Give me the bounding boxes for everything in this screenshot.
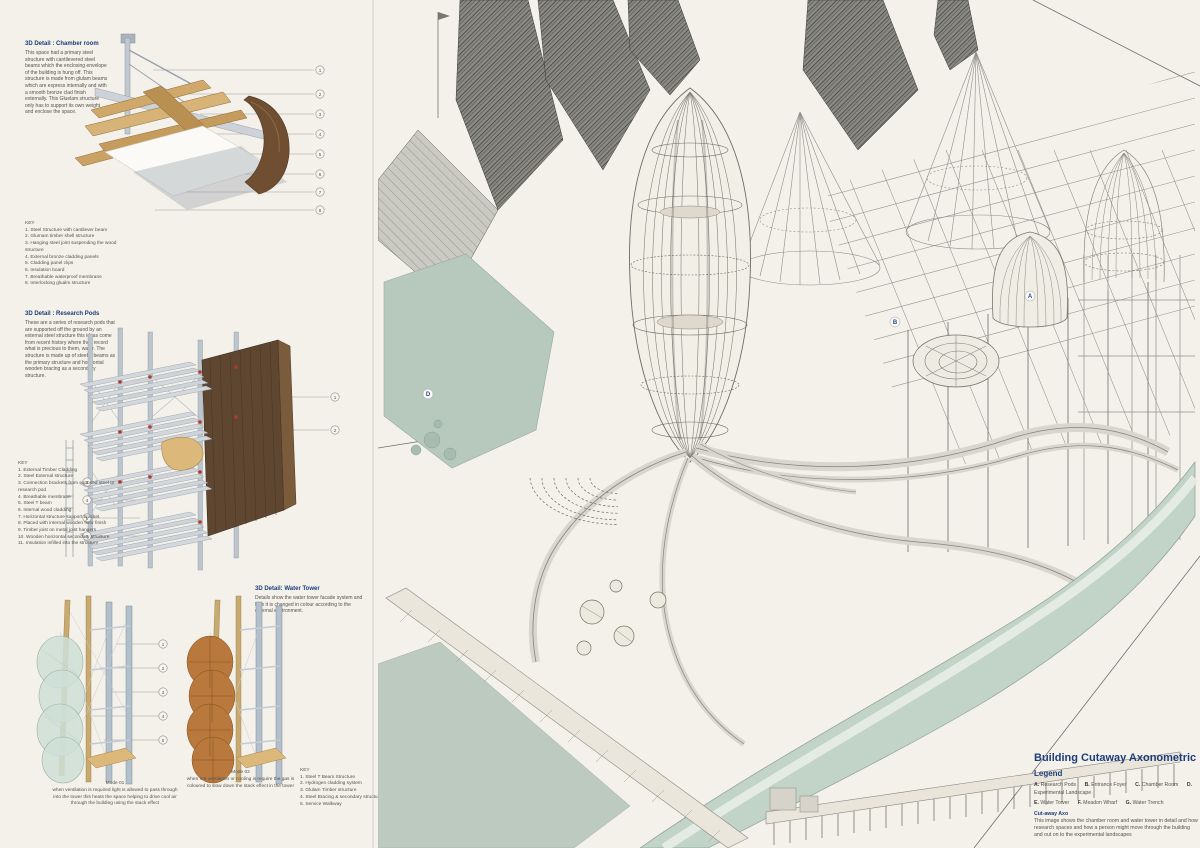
svg-text:3: 3 xyxy=(162,690,165,695)
callout-marker: 1 xyxy=(159,640,167,648)
research-key-title: KEY xyxy=(18,461,130,468)
svg-text:4: 4 xyxy=(162,714,165,719)
caption-title: Cut-away Axo xyxy=(1034,811,1200,817)
callout-marker: 4 xyxy=(159,712,167,720)
research-pod-seat xyxy=(162,437,203,470)
research-key-item: 3. Connection brackets from exposed stee… xyxy=(18,481,130,494)
legend-letter: A. xyxy=(1034,782,1039,788)
legend-label: Entrance Foyer xyxy=(1091,782,1126,788)
callout-marker: 8 xyxy=(316,206,324,214)
water-tower-callout-markers: 1 2 3 4 5 xyxy=(159,640,167,744)
legend-item: A. Research Pods xyxy=(1034,782,1076,788)
legend-item: C. Chamber Room xyxy=(1135,782,1178,788)
callout-marker: 6 xyxy=(316,170,324,178)
svg-text:D: D xyxy=(426,392,431,398)
lattice-pod-tower xyxy=(1084,150,1164,282)
legend-title: Legend xyxy=(1034,769,1200,778)
sheet-divider xyxy=(372,0,374,848)
presentation-board: 3D Detail : Chamber room This space had … xyxy=(0,0,1200,848)
callout-marker: 3 xyxy=(159,688,167,696)
legend-letter: G. xyxy=(1126,800,1131,806)
legend-letter: E. xyxy=(1034,800,1039,806)
experimental-landscape xyxy=(384,254,554,468)
foreground-tanks xyxy=(577,580,666,655)
legend-item: E. Water Tower xyxy=(1034,800,1069,806)
svg-text:A: A xyxy=(1028,294,1033,300)
callout-marker: 3 xyxy=(316,110,324,118)
research-key-item: 9. Timber joist on metal joist hangers xyxy=(18,528,130,535)
marker-d: D xyxy=(423,389,433,399)
axon-info-panel: Building Cutaway Axonometric Legend A. R… xyxy=(1034,752,1200,839)
svg-text:1: 1 xyxy=(334,395,337,400)
chamber-key-item: 6. Insulation board xyxy=(25,268,135,275)
chamber-key-item: 8. Interlocking glualm structure xyxy=(25,281,135,288)
callout-marker: 1 xyxy=(316,66,324,74)
mode2-title: Mode 02 xyxy=(178,770,303,776)
mode1-caption: Mode 01 when ventilation is required lig… xyxy=(52,781,178,808)
svg-text:B: B xyxy=(893,320,898,326)
building-cutaway-axonometric-drawing: A B D xyxy=(378,0,1200,848)
callout-marker: 1 xyxy=(331,393,339,401)
legend-label: Water Trench xyxy=(1133,800,1164,806)
callout-marker: 7 xyxy=(316,188,324,196)
callout-marker: 2 xyxy=(331,426,339,434)
legend-letter: D. xyxy=(1187,782,1192,788)
legend-row-2: E. Water Tower F. Meadon Wharf G. Water … xyxy=(1034,800,1200,808)
chamber-key-list: KEY 1. Steel Structure with cantilever b… xyxy=(25,221,135,288)
legend-item: F. Meadon Wharf xyxy=(1078,800,1118,806)
chamber-key-item: 3. Hanging steel joint suspending the wo… xyxy=(25,241,135,254)
callout-marker: 2 xyxy=(316,90,324,98)
callout-marker: 2 xyxy=(159,664,167,672)
water-tower-glass-discs xyxy=(37,636,85,783)
svg-text:4: 4 xyxy=(319,132,322,137)
legend-label: Chamber Room xyxy=(1142,782,1179,788)
chamber-key-title: KEY xyxy=(25,221,135,228)
entrance-walkway xyxy=(378,588,748,848)
spiral-pod xyxy=(913,335,999,387)
mode1-body: when ventilation is required light is al… xyxy=(52,788,178,807)
svg-text:2: 2 xyxy=(162,666,165,671)
svg-text:1: 1 xyxy=(319,68,322,73)
mode2-body: when not ventilation or cooling is requi… xyxy=(178,777,303,790)
legend-label: Meadon Wharf xyxy=(1083,800,1117,806)
svg-text:5: 5 xyxy=(319,152,322,157)
chamber-detail-drawing: 1 2 3 4 5 6 7 xyxy=(35,30,345,220)
legend-item: B. Entrance Foyer xyxy=(1085,782,1127,788)
flag-mast xyxy=(438,12,450,118)
legend-label: Water Tower xyxy=(1040,800,1069,806)
legend-row-1: A. Research Pods B. Entrance Foyer C. Ch… xyxy=(1034,782,1200,798)
water-tower-detail-drawing: 1 2 3 4 5 xyxy=(30,592,315,797)
research-key-item: 11. Insulation infilled into the structu… xyxy=(18,541,130,548)
legend-letter: B. xyxy=(1085,782,1090,788)
research-wood-wall xyxy=(202,340,296,536)
water-tower-wood-discs xyxy=(187,636,235,783)
legend-label: Experimental Landscape xyxy=(1034,790,1091,796)
water-tower-mode1 xyxy=(37,596,136,784)
water-tower-mode2 xyxy=(187,596,286,784)
chamber-callout-markers: 1 2 3 4 5 6 7 xyxy=(316,66,324,214)
callout-marker: 5 xyxy=(159,736,167,744)
research-key-item: 5. Steel T beam xyxy=(18,501,130,508)
svg-text:2: 2 xyxy=(334,428,337,433)
marker-b: B xyxy=(890,317,900,327)
callout-marker: 4 xyxy=(316,130,324,138)
research-key-item: 6. Internal wood cladding xyxy=(18,508,130,515)
research-key-list: KEY 1. External Timber Cladding 2. Steel… xyxy=(18,461,130,548)
svg-text:1: 1 xyxy=(162,642,165,647)
svg-text:6: 6 xyxy=(319,172,322,177)
legend-letter: C. xyxy=(1135,782,1140,788)
marker-a: A xyxy=(1025,291,1035,301)
svg-text:7: 7 xyxy=(319,190,322,195)
legend-item: G. Water Trench xyxy=(1126,800,1164,806)
mode2-caption: Mode 02 when not ventilation or cooling … xyxy=(178,770,303,790)
water-tower-leader-lines xyxy=(92,644,158,740)
chamber-key-item: 5. Cladding panel clips xyxy=(25,261,135,268)
svg-text:2: 2 xyxy=(319,92,322,97)
legend-label: Research Pods xyxy=(1041,782,1076,788)
central-chamber-tower xyxy=(630,88,751,462)
callout-marker: 5 xyxy=(316,150,324,158)
page-title: Building Cutaway Axonometric xyxy=(1034,752,1200,764)
svg-text:3: 3 xyxy=(319,112,322,117)
research-pod-volume xyxy=(992,232,1067,328)
caption-body: This image shows the chamber room and wa… xyxy=(1034,818,1200,839)
svg-text:8: 8 xyxy=(319,208,322,213)
mode1-title: Mode 01 xyxy=(52,781,178,787)
research-detail-title: 3D Detail : Research Pods xyxy=(25,311,117,317)
svg-text:5: 5 xyxy=(162,738,165,743)
legend-letter: F. xyxy=(1078,800,1082,806)
